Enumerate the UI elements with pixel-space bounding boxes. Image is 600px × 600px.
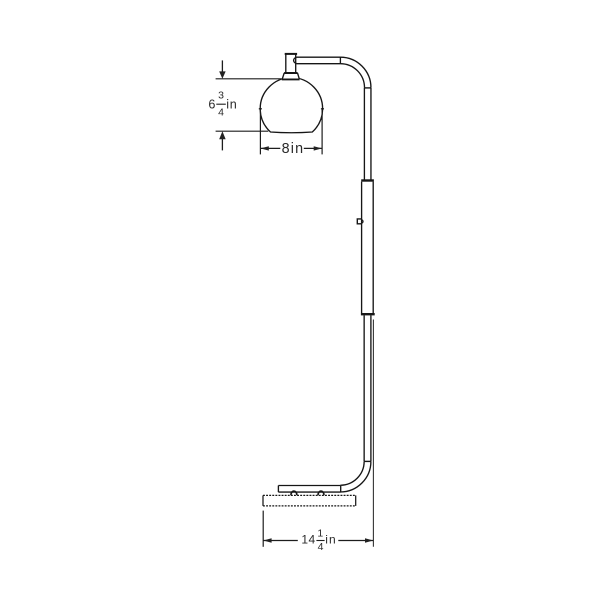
svg-text:4: 4 [218,106,224,118]
svg-text:in: in [325,533,336,547]
svg-text:in: in [226,97,237,111]
svg-text:3: 3 [218,89,224,101]
svg-text:4: 4 [318,541,324,553]
svg-text:14: 14 [301,533,315,547]
svg-text:6: 6 [208,98,215,112]
svg-text:1: 1 [317,528,323,540]
svg-text:8in: 8in [282,141,305,157]
